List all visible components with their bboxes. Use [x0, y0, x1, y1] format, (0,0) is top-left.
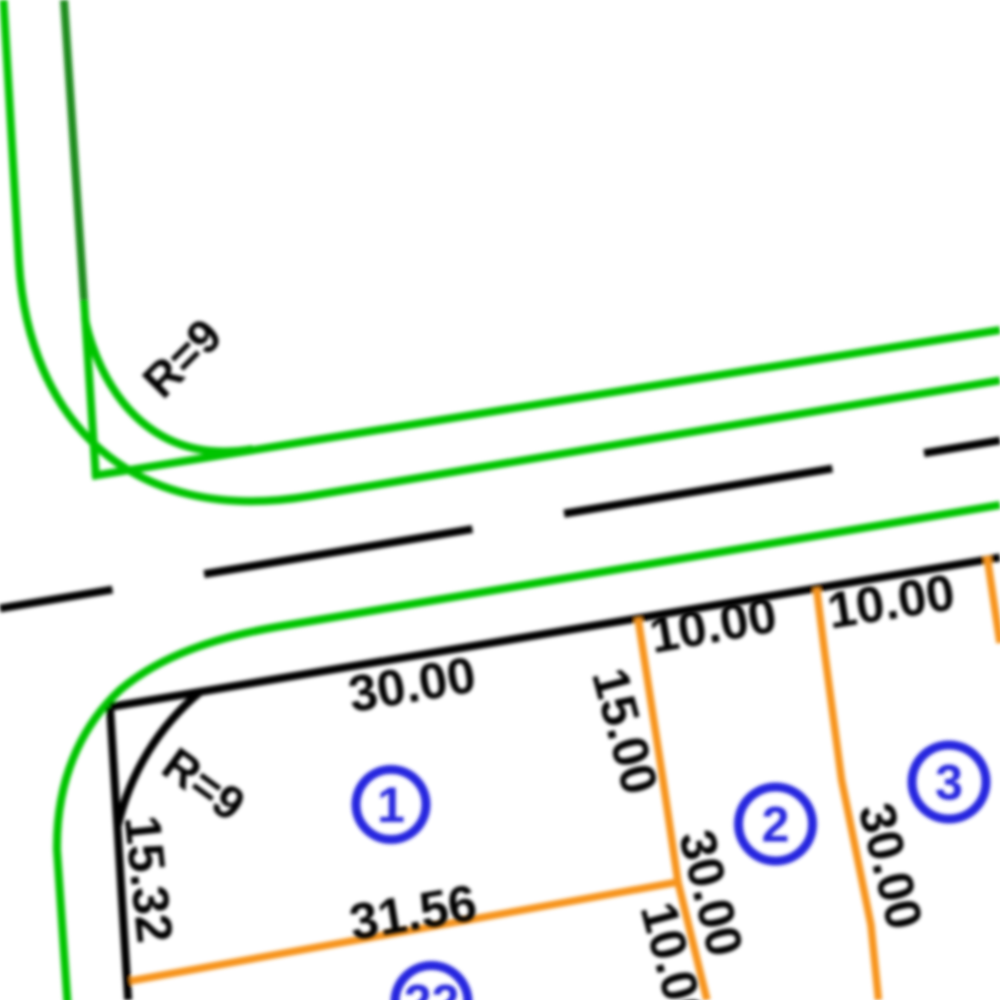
svg-text:31.56: 31.56: [345, 874, 480, 951]
svg-text:22: 22: [404, 975, 460, 1000]
svg-text:10.00: 10.00: [824, 563, 959, 639]
svg-text:1: 1: [377, 777, 405, 833]
svg-text:30.00: 30.00: [344, 646, 479, 723]
svg-text:2: 2: [762, 797, 790, 853]
svg-text:R=9: R=9: [132, 308, 231, 407]
svg-text:10.00: 10.00: [645, 586, 781, 664]
svg-text:3: 3: [935, 755, 963, 811]
